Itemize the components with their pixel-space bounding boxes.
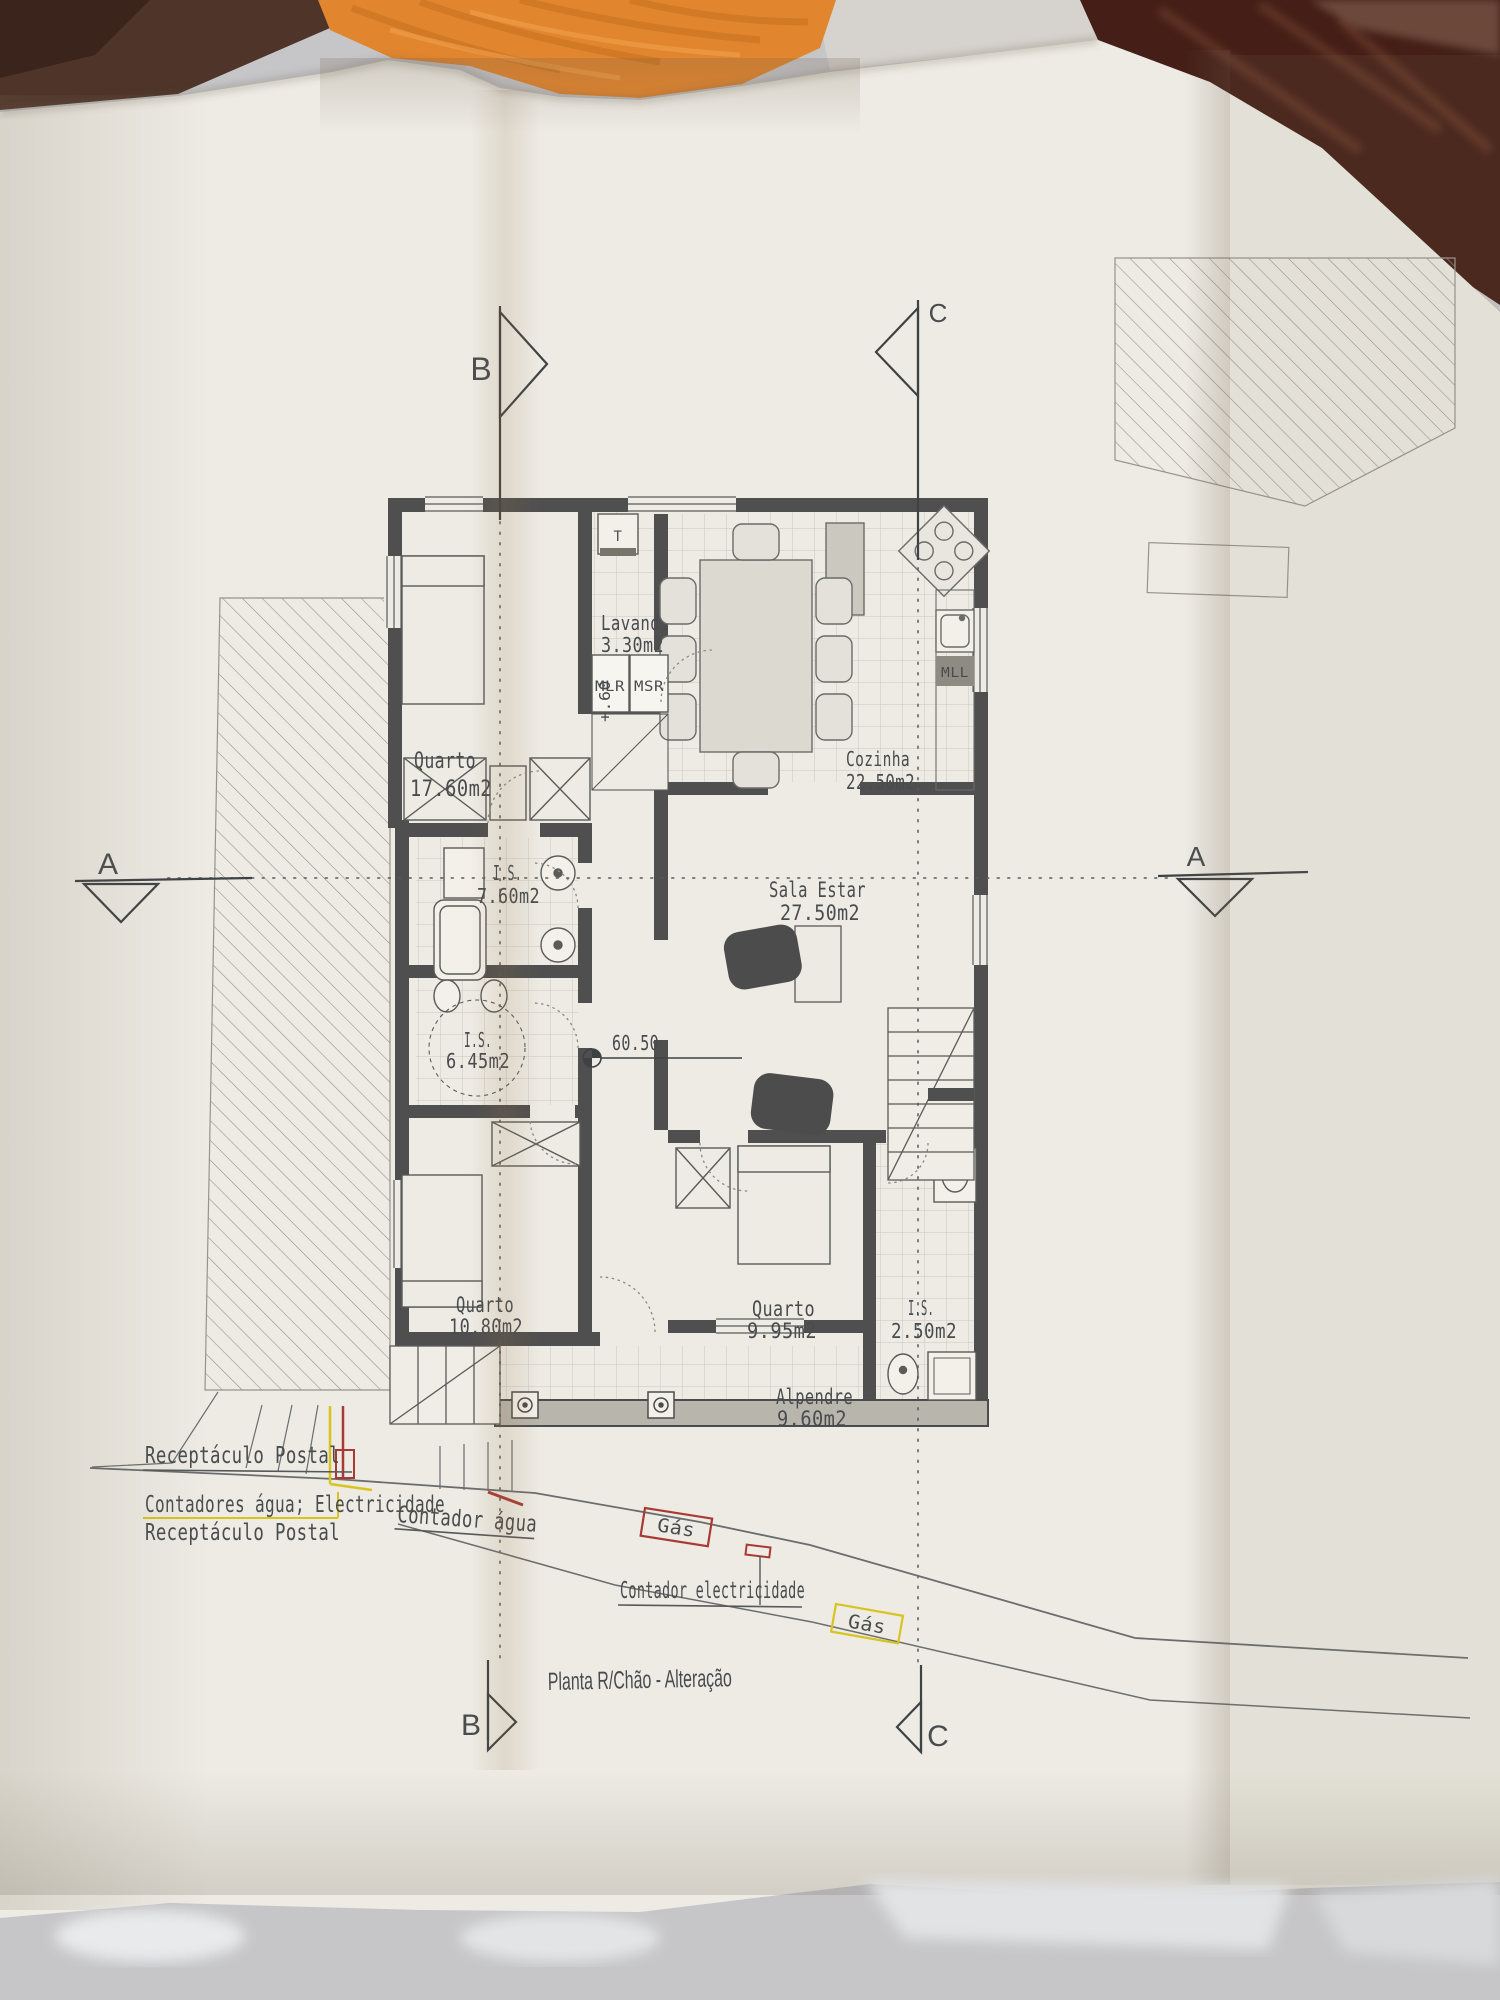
label-mlr: MLR xyxy=(595,679,625,695)
room-lavand-area: 3.30m2 xyxy=(601,633,664,657)
room-alpendre-name: Alpendre xyxy=(776,1385,853,1409)
room-quarto-1760-area: 17.60m2 xyxy=(410,777,492,802)
label-mll: MLL xyxy=(941,666,969,681)
level-value: 60.50 xyxy=(612,1031,659,1055)
room-quarto-1080-name: Quarto xyxy=(456,1293,514,1317)
section-letter-c-top: C xyxy=(929,298,948,328)
room-is760-area: 7.60m2 xyxy=(477,884,540,908)
room-is250-area: 2.50m2 xyxy=(891,1319,957,1343)
room-lavand-name: Lavand. xyxy=(601,611,670,635)
porch-wall xyxy=(495,1400,988,1426)
room-quarto-995-name: Quarto xyxy=(752,1297,815,1321)
label-msr: MSR xyxy=(634,679,664,695)
room-is645-area: 6.45m2 xyxy=(446,1049,510,1073)
room-is760-name: I.S. xyxy=(493,861,522,885)
room-quarto-1080-area: 10.80m2 xyxy=(449,1315,523,1339)
section-letter-c-bottom: C xyxy=(927,1720,949,1753)
room-cozinha-area: 22.50m2 xyxy=(846,770,915,794)
scene: B C A A B C 60.50 +.60 Quarto 17.60m2 La… xyxy=(0,0,1500,2000)
entry-steps xyxy=(390,1346,500,1424)
room-sala-area: 27.50m2 xyxy=(780,901,860,925)
label-t: T xyxy=(614,529,623,545)
photo-of-floor-plan: B C A A B C 60.50 +.60 Quarto 17.60m2 La… xyxy=(0,0,1500,2000)
room-cozinha-name: Cozinha xyxy=(846,747,910,771)
section-letter-a-right: A xyxy=(1187,841,1206,872)
section-letter-b-bottom: B xyxy=(461,1709,481,1742)
room-quarto-1760-name: Quarto xyxy=(414,749,476,774)
annotation-contador-electricidade: Contador electricidade xyxy=(620,1578,805,1604)
annotation-receptaculo-postal: Receptáculo Postal xyxy=(145,1443,340,1469)
section-letter-b-top: B xyxy=(470,351,491,387)
room-is250-name: I.S. xyxy=(908,1296,934,1320)
room-sala-name: Sala Estar xyxy=(769,878,866,902)
hatched-area-left xyxy=(205,598,390,1390)
drawing-title: Planta R/Chão - Alteração xyxy=(548,1664,733,1696)
annotation-receptaculo-postal-2: Receptáculo Postal xyxy=(145,1520,340,1546)
stairs xyxy=(888,1008,974,1180)
room-alpendre-area: 9.60m2 xyxy=(777,1407,847,1431)
section-letter-a-left: A xyxy=(98,848,118,881)
room-quarto-995-area: 9.95m2 xyxy=(747,1319,817,1343)
